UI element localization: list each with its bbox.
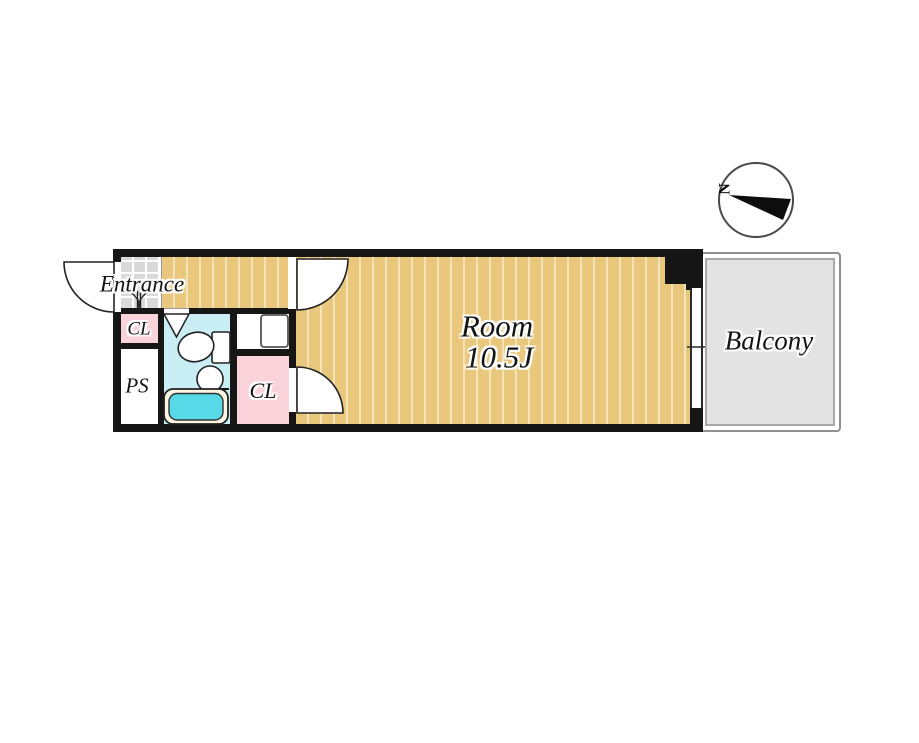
balcony-label: Balcony (725, 328, 813, 355)
floor-plan: N Entrance CL PS CL Room 10.5J Balcony (0, 0, 919, 743)
bathtub-icon (164, 389, 228, 424)
washer-pan-icon (261, 315, 288, 347)
room-closet-label: CL (250, 380, 277, 402)
closet-door-swing-icon (297, 367, 343, 413)
toilet-icon (175, 329, 230, 366)
pipe-space-label: PS (125, 376, 148, 397)
room-label: Room (461, 311, 533, 342)
entrance-label: Entrance (100, 273, 184, 296)
plan-overlay: N (0, 0, 919, 743)
compass-icon: N (717, 163, 794, 237)
compass-north-label: N (717, 183, 734, 195)
entrance-closet-label: CL (127, 320, 150, 339)
room-size-label: 10.5J (465, 342, 533, 373)
bathroom-door-icon (164, 314, 189, 337)
room-door-swing-icon (297, 259, 348, 310)
